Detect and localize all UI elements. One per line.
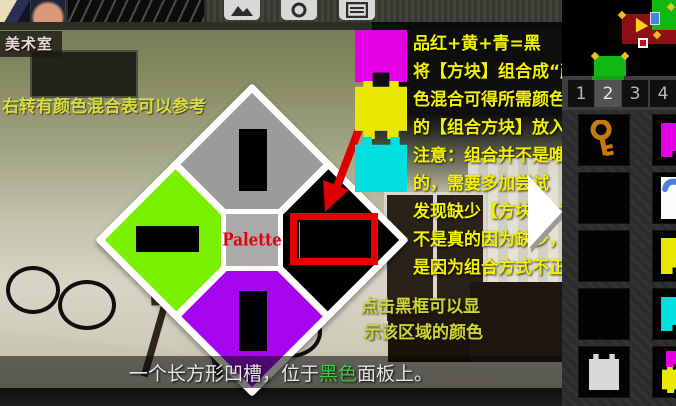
notes-button[interactable] [339,0,375,20]
inventory-slot-cyan-piece[interactable] [652,288,676,340]
magenta-yellow-pieces [662,351,676,393]
side-panel: 1234 [562,0,676,406]
key-icon [585,120,623,160]
inventory-slot-paper-note[interactable] [652,172,676,224]
selected-tab-indicator [592,76,624,80]
caption-bar: 一个长方形凹槽，位于 黑色 面板上。 [0,356,562,388]
inventory-slot-empty[interactable] [578,172,630,224]
camera-button[interactable] [281,0,317,20]
inventory-tab-2[interactable]: 2 [595,80,621,107]
puzzle-piece [661,297,676,331]
palette-slot-left[interactable] [136,226,199,252]
inventory-tab-strip: 1234 [562,76,676,110]
scene-chair [58,280,116,330]
character-portrait-1[interactable] [0,0,30,22]
minimap-event-marker-icon [638,38,648,48]
instruction-line: 品红+黄+青=黑 [413,30,563,58]
hint-click-blackframe-line1: 点击黑框可以显 [361,292,480,317]
gallery-icon [230,3,254,17]
camera-icon [287,2,311,18]
inventory-tab-4[interactable]: 4 [650,80,676,107]
instruction-line: 将【方块】组合成“颜 [413,58,563,86]
inventory-slot-magenta-piece[interactable] [652,114,676,166]
palette-center[interactable]: Palette [221,209,283,271]
caption-text-highlight: 黑色 [319,359,357,386]
inventory-tab-3[interactable]: 3 [622,80,648,107]
toolbar-divider-pattern [66,0,206,22]
caption-text-post: 面板上。 [357,359,433,386]
top-toolbar [0,0,562,22]
inventory-slot-silver-piece[interactable] [578,346,630,398]
scene-chair [6,266,60,314]
palette-label: Palette [222,230,281,251]
instruction-line: 的【组合方块】放入 [413,114,563,142]
palette-slot-bottom[interactable] [239,291,267,351]
magenta-puzzle-piece[interactable] [355,30,407,82]
puzzle-piece [661,238,676,274]
inventory-slot-empty[interactable] [578,288,630,340]
puzzle-piece [589,354,619,390]
room-name-badge: 美术室 [0,31,62,57]
inventory-slot-key[interactable] [578,114,630,166]
cmy-piece-stack [355,30,411,192]
inventory-tab-1[interactable]: 1 [568,80,594,107]
scene-cabinet [470,282,562,362]
palette-slot-top[interactable] [239,129,267,191]
notes-icon [346,2,368,18]
instruction-line: 色混合可得所需颜色” [413,86,563,114]
minimap-note-icon [650,12,660,25]
cyan-puzzle-piece[interactable] [355,137,407,192]
inventory-slot-magenta-yellow-piece[interactable] [652,346,676,398]
caption-text-pre: 一个长方形凹槽，位于 [129,359,319,386]
puzzle-piece [661,123,676,157]
paper-note-icon [661,177,676,219]
inventory-slot-empty[interactable] [578,230,630,282]
gallery-button[interactable] [224,0,260,20]
character-portrait-2[interactable] [31,0,65,22]
hint-click-blackframe-line2: 示该区域的颜色 [364,318,483,343]
yellow-puzzle-piece[interactable] [355,81,407,139]
scene-foreground [0,388,562,406]
minimap [562,0,676,76]
scene-blackboard [30,50,138,98]
game-screen: 美术室 右转有颜色混合表可以参考 点击黑框可以显 示该区域的颜色 Palette… [0,0,676,406]
instruction-line: 注意：组合并不是唯一 [413,142,563,170]
inventory-grid [562,110,676,406]
inventory-slot-yellow-piece[interactable] [652,230,676,282]
minimap-object [594,56,626,76]
hint-color-chart: 右转有颜色混合表可以参考 [2,92,206,117]
